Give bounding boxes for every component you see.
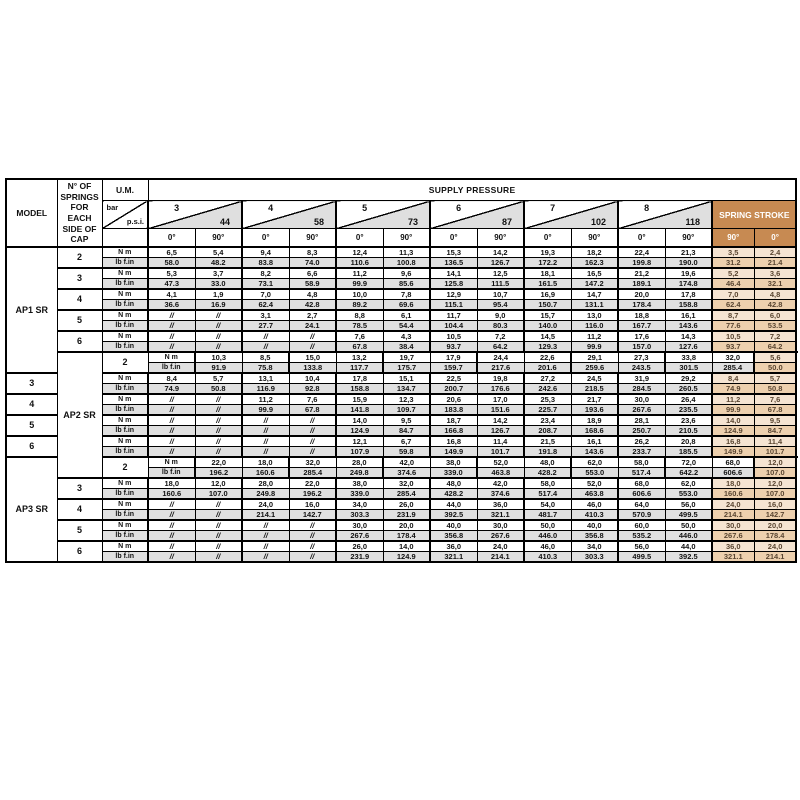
torque-value: 428.2	[524, 468, 571, 479]
torque-value: 36.6	[148, 300, 195, 311]
unit-label: N m	[102, 499, 148, 510]
torque-value: 115.1	[430, 300, 477, 311]
pressure-bar-value: 6	[456, 203, 461, 213]
torque-value: 20,8	[665, 436, 712, 447]
torque-value: //	[195, 520, 242, 531]
table-row: AP1 SR2N m6,55,49,48,312,411,315,314,219…	[6, 247, 796, 258]
torque-value: 157.0	[618, 342, 665, 353]
torque-value: 189.1	[618, 279, 665, 290]
torque-value: 162.3	[571, 258, 618, 269]
stroke-value: 46.4	[712, 279, 754, 290]
torque-value: 249.8	[336, 468, 383, 479]
torque-value: //	[289, 331, 336, 342]
unit-label: N m	[102, 415, 148, 426]
torque-value: 196.2	[289, 489, 336, 500]
torque-value: //	[289, 415, 336, 426]
torque-value: 50.8	[195, 384, 242, 395]
unit-label: lb f.in	[102, 342, 148, 353]
torque-value: 22,6	[524, 352, 571, 363]
table-row: lb f.in74.950.8116.992.8158.8134.7200.71…	[6, 384, 796, 395]
torque-value: 24.1	[289, 321, 336, 332]
table-row: lb f.in58.048.283.874.0110.6100.8136.512…	[6, 258, 796, 269]
torque-value: 7,2	[477, 331, 524, 342]
torque-value: 29,2	[665, 373, 712, 384]
torque-value: 570.9	[618, 510, 665, 521]
torque-value: 40,0	[571, 520, 618, 531]
torque-value: 151.6	[477, 405, 524, 416]
unit-label: N m	[102, 310, 148, 321]
stroke-value: 20,0	[754, 520, 796, 531]
bar-label: bar	[107, 203, 119, 212]
spring-count: 6	[6, 436, 57, 457]
stroke-value: 36,0	[712, 541, 754, 552]
torque-value: 140.0	[524, 321, 571, 332]
torque-value: 199.8	[618, 258, 665, 269]
torque-value: 58,0	[524, 478, 571, 489]
stroke-value: 14,0	[712, 415, 754, 426]
torque-value: //	[242, 426, 289, 437]
torque-value: 428.2	[430, 489, 477, 500]
pressure-header-3: 344	[148, 201, 242, 229]
unit-label: lb f.in	[102, 321, 148, 332]
torque-value: 13,1	[242, 373, 289, 384]
pressure-bar-value: 8	[644, 203, 649, 213]
torque-value: //	[148, 331, 195, 342]
torque-value: 446.0	[665, 531, 712, 542]
torque-value: 9,5	[383, 415, 430, 426]
torque-value: 36,0	[430, 541, 477, 552]
torque-value: 59.8	[383, 447, 430, 458]
torque-value: 47.3	[148, 279, 195, 290]
stroke-value: 267.6	[712, 531, 754, 542]
stroke-value: 11,2	[712, 394, 754, 405]
torque-value: //	[195, 447, 242, 458]
table-row: lb f.in////214.1142.7303.3231.9392.5321.…	[6, 510, 796, 521]
torque-value: 78.5	[336, 321, 383, 332]
torque-value: 11,2	[571, 331, 618, 342]
model-header: MODEL	[6, 179, 57, 247]
torque-value: //	[289, 520, 336, 531]
torque-value: 107.9	[336, 447, 383, 458]
model-name: AP2 SR	[57, 352, 102, 478]
table-row: 5N m////3,12,78,86,111,79,015,713,018,81…	[6, 310, 796, 321]
torque-value: 231.9	[336, 552, 383, 563]
torque-value: 12,1	[336, 436, 383, 447]
torque-value: 62.4	[242, 300, 289, 311]
torque-value: 15,3	[430, 247, 477, 258]
torque-value: //	[148, 531, 195, 542]
torque-value: 160.6	[148, 489, 195, 500]
torque-value: 19,6	[665, 268, 712, 279]
torque-value: //	[195, 531, 242, 542]
torque-value: 174.8	[665, 279, 712, 290]
torque-value: 58.9	[289, 279, 336, 290]
torque-value: 95.4	[477, 300, 524, 311]
pressure-header-5: 573	[336, 201, 430, 229]
torque-value: 14,2	[477, 415, 524, 426]
unit-label: lb f.in	[102, 405, 148, 416]
stroke-value: 214.1	[712, 510, 754, 521]
torque-value: 18,7	[430, 415, 477, 426]
stroke-value: 321.1	[712, 552, 754, 563]
torque-value: //	[289, 426, 336, 437]
torque-value: 535.2	[618, 531, 665, 542]
unit-label: N m	[148, 457, 195, 468]
torque-value: 100.8	[383, 258, 430, 269]
pressure-psi-value: 118	[685, 217, 700, 227]
spring-count: 3	[57, 478, 102, 499]
torque-value: 110.6	[336, 258, 383, 269]
torque-value: //	[289, 552, 336, 563]
torque-value: 160.6	[242, 468, 289, 479]
torque-value: 3,1	[242, 310, 289, 321]
torque-value: 15,1	[383, 373, 430, 384]
torque-value: 18,8	[618, 310, 665, 321]
table-row: 3N m18,012,028,022,038,032,048,042,058,0…	[6, 478, 796, 489]
torque-value: 553.0	[665, 489, 712, 500]
torque-value: 10,4	[289, 373, 336, 384]
pressure-header-6: 687	[430, 201, 524, 229]
torque-value: 24,0	[477, 541, 524, 552]
torque-value: 92.8	[289, 384, 336, 395]
table-row: lb f.in47.333.073.158.999.985.6125.8111.…	[6, 279, 796, 290]
torque-value: //	[148, 321, 195, 332]
torque-value: 517.4	[524, 489, 571, 500]
stroke-value: 5,7	[754, 373, 796, 384]
model-name: AP1 SR	[6, 247, 57, 373]
torque-value: //	[289, 436, 336, 447]
torque-value: 4,1	[148, 289, 195, 300]
stroke-value: 160.6	[712, 489, 754, 500]
torque-value: 11,2	[336, 268, 383, 279]
torque-value: 11,3	[383, 247, 430, 258]
torque-value: 10,5	[430, 331, 477, 342]
torque-value: //	[148, 415, 195, 426]
torque-value: 18,9	[571, 415, 618, 426]
torque-value: 124.9	[336, 426, 383, 437]
torque-value: 259.6	[571, 363, 618, 374]
torque-value: //	[195, 415, 242, 426]
table-row: lb f.in////////107.959.8149.9101.7191.81…	[6, 447, 796, 458]
torque-value: 69.6	[383, 300, 430, 311]
torque-value: 58,0	[618, 457, 665, 468]
torque-value: 4,8	[289, 289, 336, 300]
torque-value: 13,2	[336, 352, 383, 363]
torque-value: //	[148, 520, 195, 531]
unit-label: lb f.in	[102, 447, 148, 458]
torque-value: 12,0	[195, 478, 242, 489]
torque-value: 4,3	[383, 331, 430, 342]
torque-value: 17,6	[618, 331, 665, 342]
torque-value: 21,5	[524, 436, 571, 447]
torque-value: 392.5	[665, 552, 712, 563]
torque-value: 200.7	[430, 384, 477, 395]
torque-value: //	[195, 331, 242, 342]
torque-value: 249.8	[242, 489, 289, 500]
torque-value: 463.8	[477, 468, 524, 479]
model-name: AP3 SR	[6, 457, 57, 562]
torque-value: 31,9	[618, 373, 665, 384]
spring-count: 2	[102, 352, 148, 373]
torque-value: //	[242, 415, 289, 426]
stroke-value: 8,4	[712, 373, 754, 384]
torque-value: //	[148, 405, 195, 416]
torque-value: 16,1	[665, 310, 712, 321]
torque-value: 83.8	[242, 258, 289, 269]
torque-value: 22,4	[618, 247, 665, 258]
torque-value: 10,0	[336, 289, 383, 300]
torque-value: 50,0	[665, 520, 712, 531]
stroke-value: 214.1	[754, 552, 796, 563]
torque-value: 141.8	[336, 405, 383, 416]
torque-value: 32,0	[712, 352, 754, 363]
torque-value: 6,6	[289, 268, 336, 279]
table-row: 4N m////11,27,615,912,320,617,025,321,73…	[6, 394, 796, 405]
torque-value: 191.8	[524, 447, 571, 458]
torque-value: 30,0	[618, 394, 665, 405]
stroke-value: 16,0	[754, 499, 796, 510]
torque-value: 10,7	[477, 289, 524, 300]
torque-value: //	[195, 552, 242, 563]
torque-value: 23,4	[524, 415, 571, 426]
table-row: lb f.in////////124.984.7166.8126.7208.71…	[6, 426, 796, 437]
torque-value: 48,0	[430, 478, 477, 489]
torque-value: 93.7	[430, 342, 477, 353]
torque-value: 161.5	[524, 279, 571, 290]
torque-value: 52,0	[571, 478, 618, 489]
unit-label: lb f.in	[102, 531, 148, 542]
torque-value: 116.0	[571, 321, 618, 332]
deg0-header: 0°	[430, 229, 477, 248]
table-row: lb f.in////////231.9124.9321.1214.1410.3…	[6, 552, 796, 563]
torque-value: //	[289, 342, 336, 353]
stroke-value: 50.8	[754, 384, 796, 395]
torque-value: 109.7	[383, 405, 430, 416]
torque-value: 44,0	[430, 499, 477, 510]
torque-value: 18,2	[571, 247, 618, 258]
torque-value: 5,4	[195, 247, 242, 258]
stroke-value: 31.2	[712, 258, 754, 269]
torque-value: //	[148, 394, 195, 405]
torque-value: 56,0	[618, 541, 665, 552]
torque-value: 642.2	[665, 468, 712, 479]
torque-value: 6,7	[383, 436, 430, 447]
table-row: 6N m////////12,16,716,811,421,516,126,22…	[6, 436, 796, 447]
torque-value: 243.5	[618, 363, 665, 374]
torque-value: 410.3	[571, 510, 618, 521]
stroke-value: 16,8	[712, 436, 754, 447]
table-row: AP3 SR2N m22,018,032,028,042,038,052,048…	[6, 457, 796, 468]
springs-header: N° OF SPRINGS FOR EACH SIDE OF CAP	[57, 179, 102, 247]
pressure-psi-value: 44	[220, 217, 230, 227]
torque-value: 24,4	[477, 352, 524, 363]
torque-value: 34,0	[336, 499, 383, 510]
torque-value: 231.9	[383, 510, 430, 521]
torque-value: 32,0	[289, 457, 336, 468]
table-row: 4N m4,11,97,04,810,07,812,910,716,914,72…	[6, 289, 796, 300]
torque-value: 40,0	[430, 520, 477, 531]
torque-value: //	[289, 447, 336, 458]
torque-value: //	[148, 436, 195, 447]
torque-value: 24,5	[571, 373, 618, 384]
table-row: AP2 SR2N m10,38,515,013,219,717,924,422,…	[6, 352, 796, 363]
torque-value: 166.8	[430, 426, 477, 437]
um-spacer-cell	[102, 229, 148, 248]
torque-value: 14,2	[477, 247, 524, 258]
pressure-psi-value: 58	[314, 217, 324, 227]
stroke-value: 4,8	[754, 289, 796, 300]
table-row: 3N m8,45,713,110,417,815,122,519,827,224…	[6, 373, 796, 384]
torque-value: 12,5	[477, 268, 524, 279]
stroke-value: 5,6	[754, 352, 796, 363]
torque-value: 499.5	[618, 552, 665, 563]
torque-value: //	[148, 552, 195, 563]
torque-value: 242.6	[524, 384, 571, 395]
torque-value: //	[242, 331, 289, 342]
torque-value: //	[148, 510, 195, 521]
torque-value: 17,8	[336, 373, 383, 384]
stroke-value: 6,0	[754, 310, 796, 321]
stroke-value: 8,7	[712, 310, 754, 321]
torque-value: 38.4	[383, 342, 430, 353]
stroke-value: 3,6	[754, 268, 796, 279]
torque-value: 339.0	[336, 489, 383, 500]
torque-value: 28,0	[336, 457, 383, 468]
torque-value: 150.7	[524, 300, 571, 311]
unit-label: N m	[102, 478, 148, 489]
torque-value: 48.2	[195, 258, 242, 269]
table-row: 5N m////////14,09,518,714,223,418,928,12…	[6, 415, 796, 426]
spring-count: 5	[57, 520, 102, 541]
pressure-header-7: 7102	[524, 201, 618, 229]
table-row: lb f.in////////67.838.493.764.2129.399.9…	[6, 342, 796, 353]
torque-value: 21,7	[571, 394, 618, 405]
torque-value: 101.7	[477, 447, 524, 458]
torque-value: 168.6	[571, 426, 618, 437]
torque-value: 196.2	[195, 468, 242, 479]
torque-value: 42,0	[477, 478, 524, 489]
spring-count: 6	[57, 541, 102, 562]
torque-value: 339.0	[430, 468, 477, 479]
torque-value: 606.6	[618, 489, 665, 500]
torque-value: 99.9	[336, 279, 383, 290]
unit-label: N m	[102, 268, 148, 279]
torque-value: 14,1	[430, 268, 477, 279]
stroke-value: 42.8	[754, 300, 796, 311]
torque-value: 159.7	[430, 363, 477, 374]
table-row: lb f.in////////267.6178.4356.8267.6446.0…	[6, 531, 796, 542]
torque-value: 374.6	[383, 468, 430, 479]
torque-value: 16.9	[195, 300, 242, 311]
torque-table: MODEL N° OF SPRINGS FOR EACH SIDE OF CAP…	[5, 178, 797, 563]
torque-value: //	[195, 321, 242, 332]
torque-value: 225.7	[524, 405, 571, 416]
torque-value: 91.9	[195, 363, 242, 374]
torque-value: 30,0	[336, 520, 383, 531]
table-row: 4N m////24,016,034,026,044,036,054,046,0…	[6, 499, 796, 510]
torque-value: 23,6	[665, 415, 712, 426]
torque-value: 9,4	[242, 247, 289, 258]
torque-value: 29,1	[571, 352, 618, 363]
torque-value: 33.0	[195, 279, 242, 290]
torque-value: 17,9	[430, 352, 477, 363]
stroke-value: 7,6	[754, 394, 796, 405]
torque-value: 54,0	[524, 499, 571, 510]
torque-value: 267.6	[618, 405, 665, 416]
torque-value: 14,5	[524, 331, 571, 342]
torque-value: 99.9	[571, 342, 618, 353]
torque-value: //	[148, 541, 195, 552]
stroke-value: 7,2	[754, 331, 796, 342]
torque-value: 67.8	[289, 405, 336, 416]
torque-value: 15,0	[289, 352, 336, 363]
torque-value: 38,0	[430, 457, 477, 468]
unit-label: N m	[102, 331, 148, 342]
pressure-psi-value: 73	[408, 217, 418, 227]
torque-value: 30,0	[477, 520, 524, 531]
unit-label: lb f.in	[102, 258, 148, 269]
stroke-value: 64.2	[754, 342, 796, 353]
torque-value: 125.8	[430, 279, 477, 290]
torque-value: 218.5	[571, 384, 618, 395]
torque-value: 16,0	[289, 499, 336, 510]
spring-count: 3	[6, 373, 57, 394]
deg0-header: 0°	[524, 229, 571, 248]
torque-value: 250.7	[618, 426, 665, 437]
torque-value: 214.1	[477, 552, 524, 563]
stroke-value: 10,5	[712, 331, 754, 342]
torque-value: 104.4	[430, 321, 477, 332]
torque-value: //	[242, 447, 289, 458]
torque-value: 267.6	[336, 531, 383, 542]
stroke-value: 7,0	[712, 289, 754, 300]
torque-value: 193.6	[571, 405, 618, 416]
torque-value: //	[289, 541, 336, 552]
stroke-value: 50.0	[754, 363, 796, 374]
torque-value: //	[242, 520, 289, 531]
torque-value: 50,0	[524, 520, 571, 531]
torque-value: 111.5	[477, 279, 524, 290]
torque-value: 356.8	[430, 531, 477, 542]
torque-value: //	[195, 426, 242, 437]
um-header: U.M.	[102, 179, 148, 201]
torque-value: 27,2	[524, 373, 571, 384]
torque-value: //	[242, 436, 289, 447]
spring-stroke-header: SPRING STROKE	[712, 201, 796, 229]
torque-value: 21,2	[618, 268, 665, 279]
stroke-value: 24,0	[754, 541, 796, 552]
torque-value: 158.8	[336, 384, 383, 395]
stroke-value: 107.0	[754, 489, 796, 500]
stroke-value: 101.7	[754, 447, 796, 458]
torque-value: //	[242, 342, 289, 353]
torque-value: 44,0	[665, 541, 712, 552]
torque-value: 58.0	[148, 258, 195, 269]
torque-value: 24,0	[242, 499, 289, 510]
deg90-header: 90°	[195, 229, 242, 248]
torque-value: 147.2	[571, 279, 618, 290]
unit-label: N m	[102, 394, 148, 405]
pressure-bar-value: 4	[268, 203, 273, 213]
torque-value: //	[148, 310, 195, 321]
unit-label: lb f.in	[148, 468, 195, 479]
torque-value: 142.7	[289, 510, 336, 521]
torque-value: 214.1	[242, 510, 289, 521]
unit-label: lb f.in	[102, 384, 148, 395]
torque-value: 15,7	[524, 310, 571, 321]
deg0-header: 0°	[148, 229, 195, 248]
stroke-deg-header: 0°	[754, 229, 796, 248]
